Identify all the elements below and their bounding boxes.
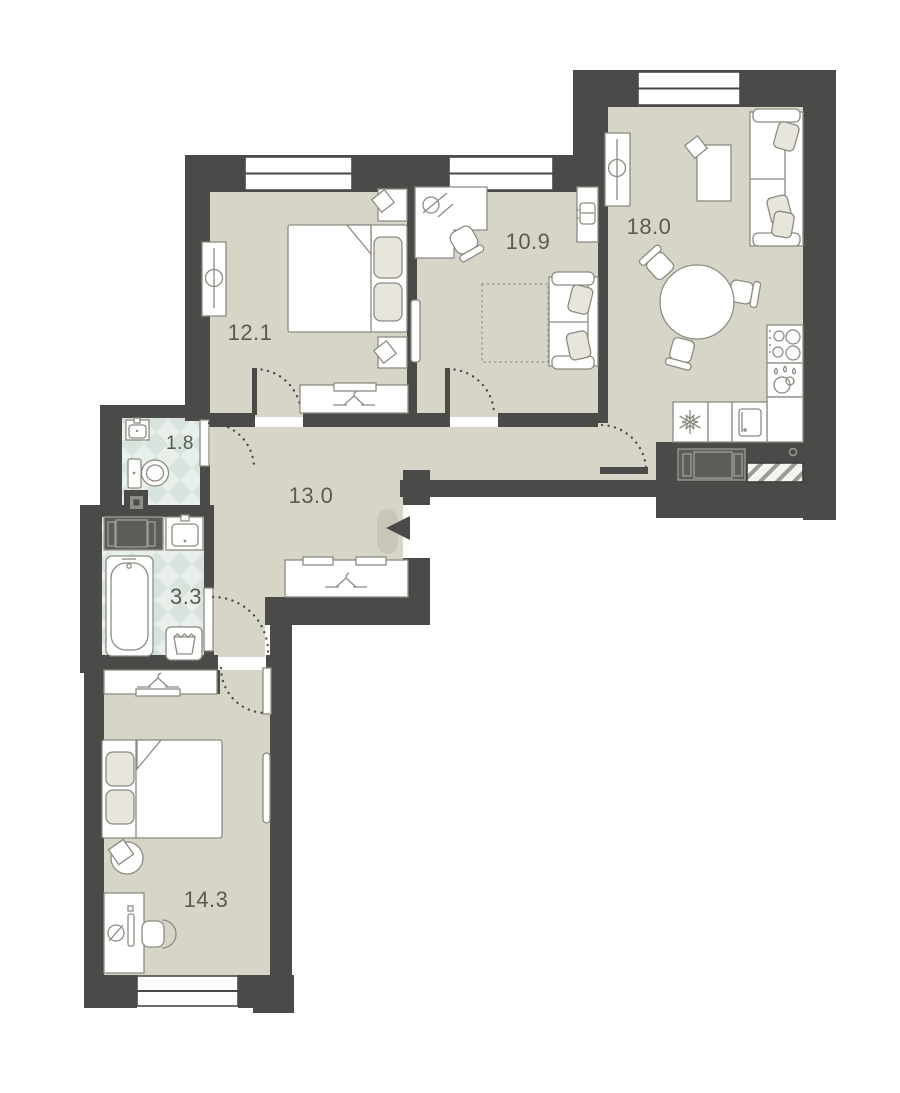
pillow	[106, 752, 134, 786]
kitchen-counter	[767, 397, 803, 442]
living-door-leaf	[600, 467, 648, 474]
wardrobe-icon	[104, 670, 217, 696]
room-label-office: 10.9	[506, 229, 551, 255]
vent-shaft-icon	[747, 463, 803, 482]
bathroom-sink-icon	[166, 515, 203, 550]
wardrobe-icon	[285, 557, 408, 597]
cabinet-icon	[577, 187, 598, 242]
bathroom-door-leaf	[204, 588, 213, 651]
window-bedroom-2	[137, 976, 238, 1006]
pillow	[106, 790, 134, 824]
fridge-icon	[673, 402, 708, 442]
pillow	[771, 210, 795, 238]
bedroom-1-door-leaf	[252, 368, 257, 415]
office-door-leaf	[445, 368, 450, 415]
pillow	[374, 283, 402, 321]
room-label-living-kitchen: 18.0	[627, 214, 672, 240]
pillow	[374, 237, 402, 278]
room-label-bedroom-1: 12.1	[228, 320, 273, 346]
bathtub-icon	[106, 556, 153, 656]
room-label-bedroom-2: 14.3	[184, 887, 229, 913]
room-label-hallway: 13.0	[289, 483, 334, 509]
washing-machine-icon	[104, 517, 163, 550]
radiator-panel-icon	[411, 300, 420, 362]
sofa-icon	[750, 109, 803, 246]
shaft-icon	[124, 490, 148, 512]
hallway-furniture	[285, 557, 408, 597]
double-bed-icon	[102, 740, 222, 838]
mirror-icon	[263, 753, 270, 823]
desk-icon	[104, 893, 144, 973]
window-bedroom-1	[245, 157, 352, 190]
entrance-door	[377, 509, 410, 554]
radiator-icon	[605, 133, 630, 206]
monitor-icon	[128, 914, 134, 946]
kitchen-counter	[708, 402, 732, 442]
dishwasher-icon	[732, 402, 767, 442]
wc-door-leaf	[200, 420, 209, 466]
kitchen-sink-icon	[767, 363, 803, 397]
room-label-bathroom: 3.3	[170, 584, 202, 610]
wardrobe-icon	[300, 383, 408, 413]
bench-icon	[678, 449, 745, 480]
nightstand-icon	[374, 337, 407, 368]
floor-plan-svg	[0, 0, 900, 1093]
floor-plan: 12.1 10.9 18.0 1.8 13.0 3.3 14.3	[0, 0, 900, 1093]
hand-sink-icon	[126, 418, 149, 440]
room-label-wc: 1.8	[166, 433, 194, 455]
laundry-basket-icon	[166, 627, 202, 660]
toilet-icon	[128, 459, 169, 488]
window-office	[449, 157, 553, 190]
double-bed-icon	[288, 225, 407, 332]
stove-icon	[767, 325, 803, 363]
window-living-kitchen	[638, 72, 740, 105]
radiator-icon	[202, 242, 226, 316]
bedroom-2-door-leaf	[263, 668, 271, 714]
